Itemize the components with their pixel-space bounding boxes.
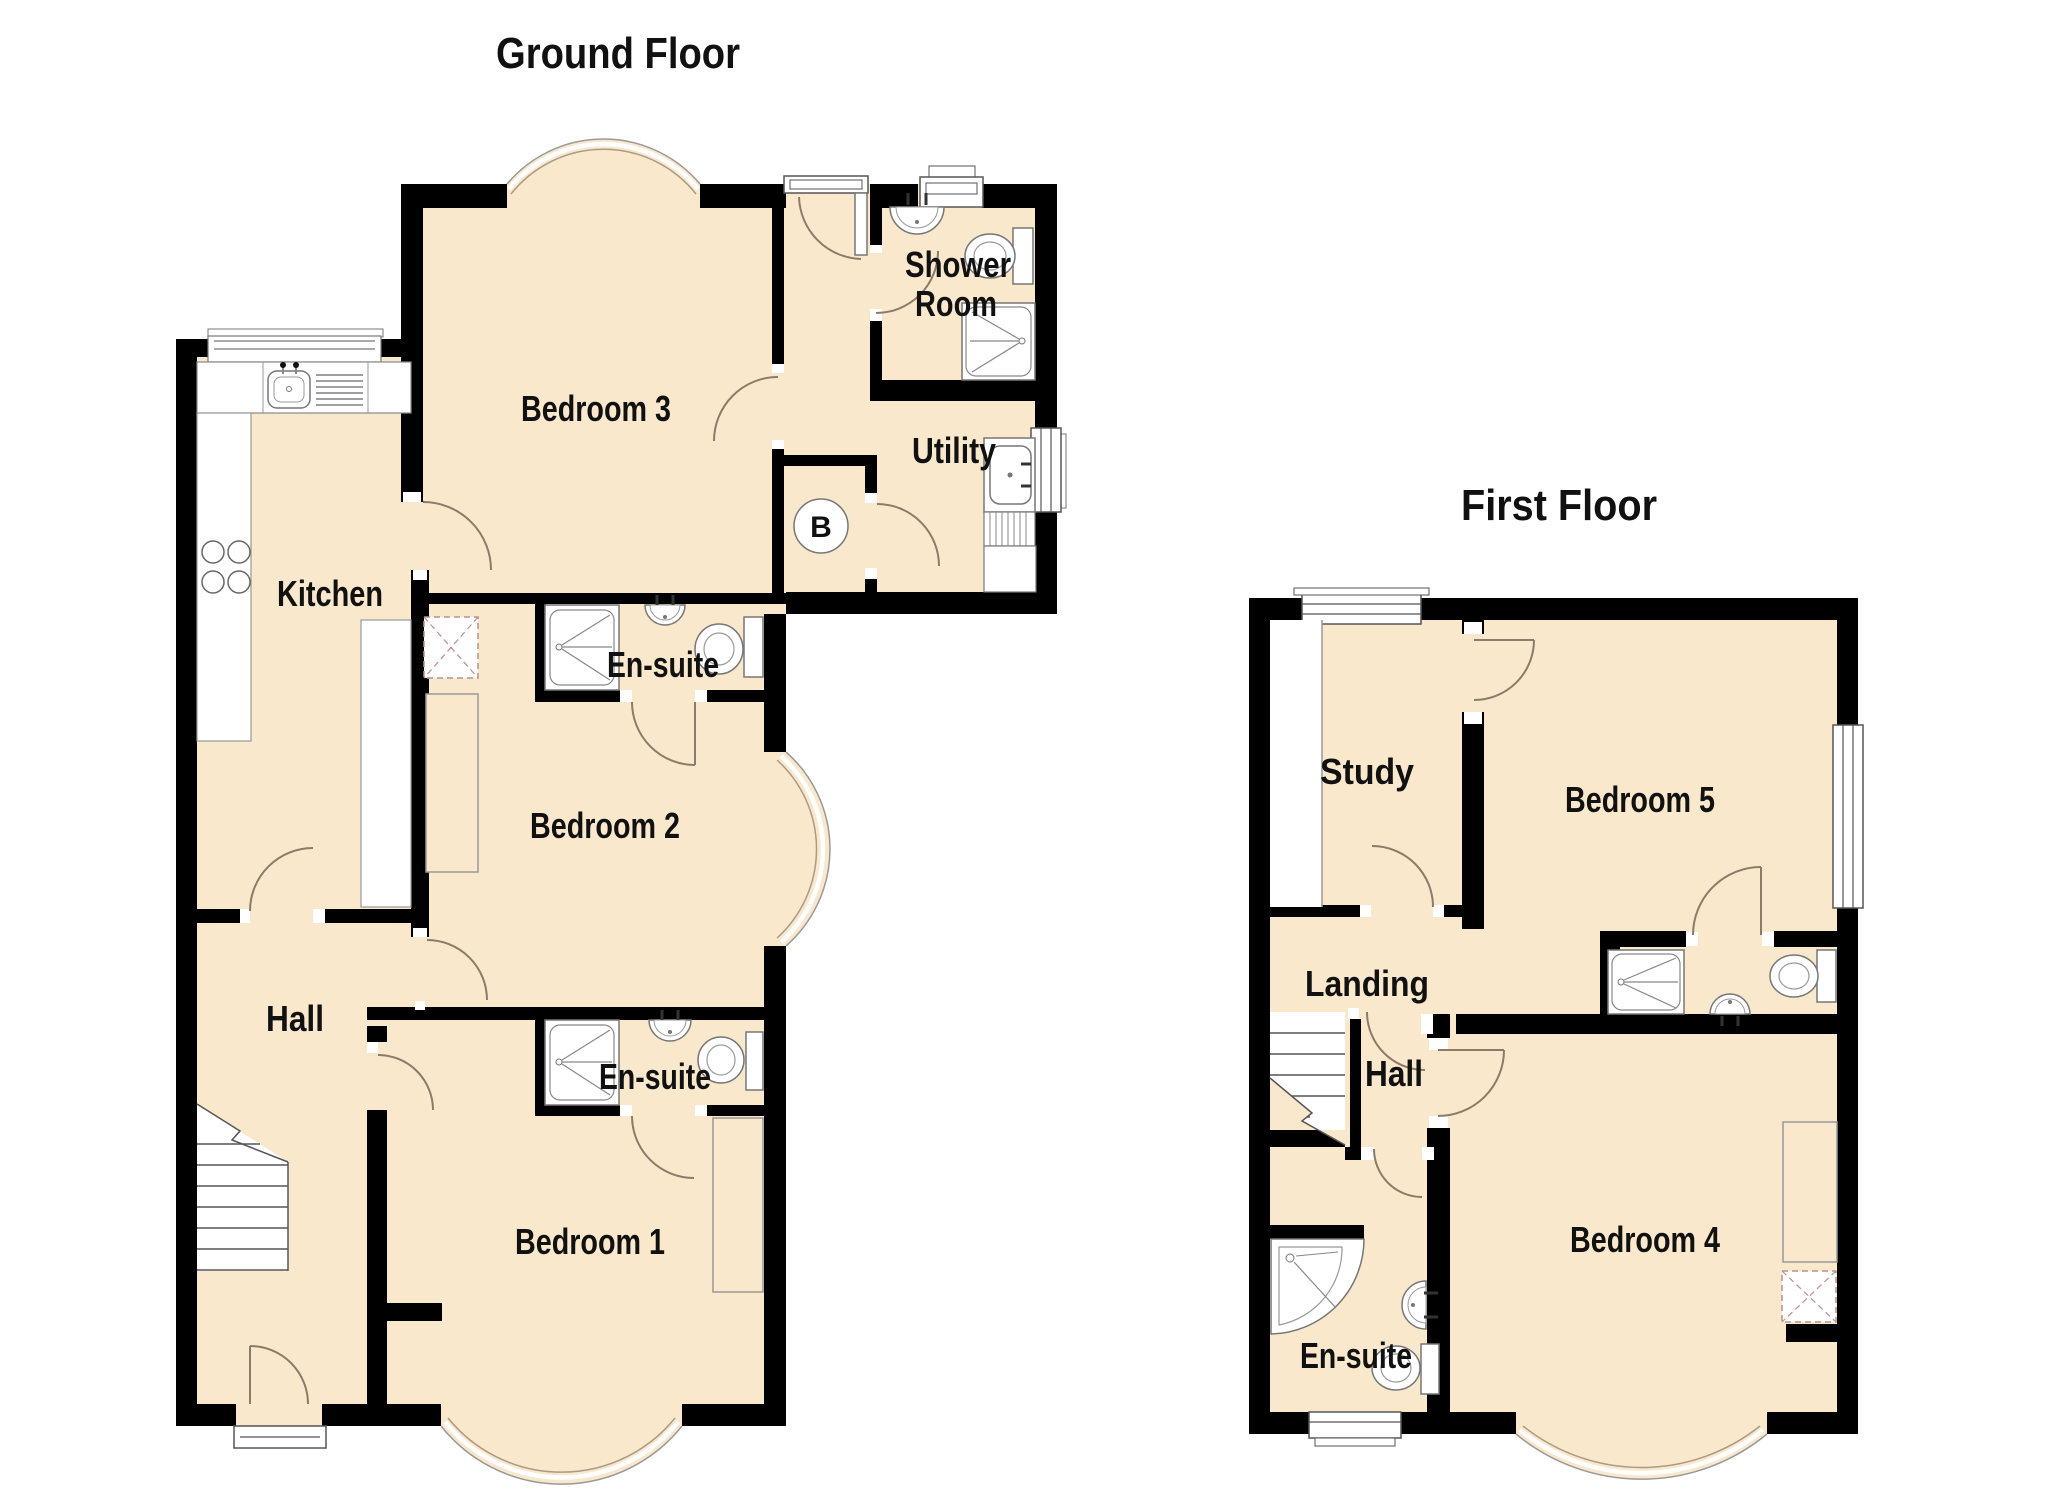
svg-text:B: B — [810, 511, 832, 544]
svg-text:Landing: Landing — [1305, 963, 1429, 1004]
svg-text:Kitchen: Kitchen — [277, 573, 383, 614]
svg-text:Bedroom 2: Bedroom 2 — [530, 805, 680, 846]
svg-text:En-suite: En-suite — [599, 1056, 711, 1097]
svg-text:En-suite: En-suite — [607, 644, 719, 685]
svg-text:Bedroom 4: Bedroom 4 — [1570, 1219, 1720, 1260]
svg-text:Shower: Shower — [905, 244, 1011, 285]
svg-text:Room: Room — [915, 283, 997, 324]
svg-text:Hall: Hall — [1365, 1053, 1423, 1094]
svg-text:Study: Study — [1320, 751, 1414, 792]
svg-text:En-suite: En-suite — [1300, 1335, 1412, 1376]
svg-text:Bedroom 5: Bedroom 5 — [1565, 779, 1715, 820]
svg-text:Hall: Hall — [266, 998, 324, 1039]
svg-text:First Floor: First Floor — [1461, 481, 1657, 530]
svg-text:Bedroom 1: Bedroom 1 — [515, 1221, 665, 1262]
svg-text:Ground Floor: Ground Floor — [496, 29, 740, 78]
svg-text:Utility: Utility — [912, 430, 996, 471]
svg-text:Bedroom 3: Bedroom 3 — [521, 388, 671, 429]
